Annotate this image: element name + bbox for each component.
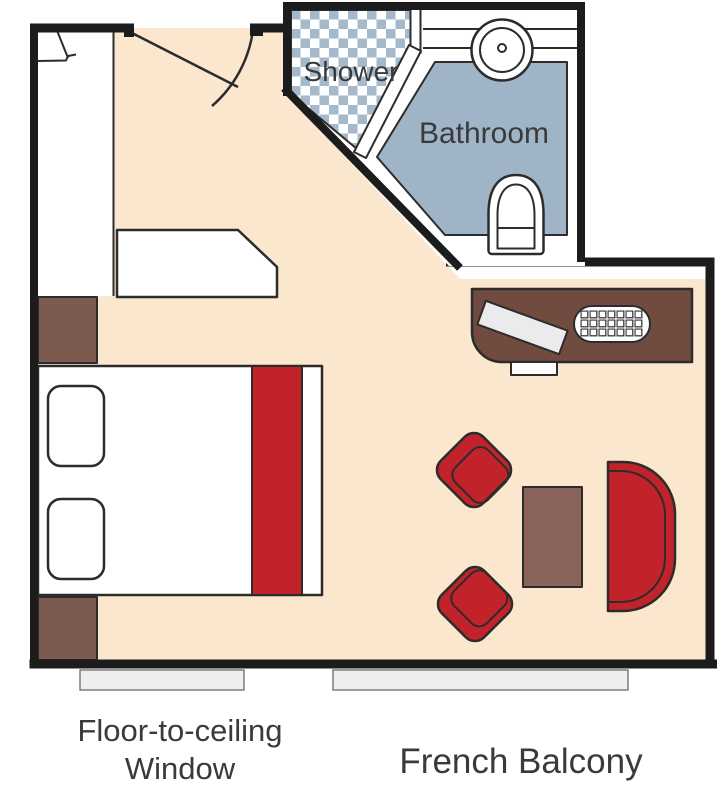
sink-drain xyxy=(498,44,506,52)
sink xyxy=(472,20,533,81)
door-jamb-left xyxy=(124,28,134,37)
desk-stool xyxy=(511,362,557,375)
pillow xyxy=(48,499,104,579)
desk xyxy=(472,289,692,375)
bed xyxy=(38,366,322,595)
window-sill xyxy=(80,670,244,690)
nightstand-bottom xyxy=(38,597,97,660)
closet-area xyxy=(38,28,114,296)
pillow xyxy=(48,386,104,466)
loveseat-halfround xyxy=(608,462,675,611)
balcony-caption: French Balcony xyxy=(399,742,643,781)
desk-keypad-grid xyxy=(581,311,644,338)
coffee-table xyxy=(523,487,582,587)
bed-runner xyxy=(252,366,302,595)
wardrobe-closet xyxy=(38,28,114,296)
nightstand-top xyxy=(38,297,97,363)
door-jamb-right xyxy=(250,28,263,36)
shower-label: Shower xyxy=(304,56,399,87)
balcony-sill xyxy=(333,670,628,690)
floorplan-canvas: Shower Bathroom Floor-to-ceiling Window … xyxy=(0,0,726,794)
bathroom-label: Bathroom xyxy=(419,117,549,150)
window-caption-line1: Floor-to-ceiling xyxy=(77,713,282,748)
stateroom-floorplan: Shower Bathroom Floor-to-ceiling Window … xyxy=(0,0,726,794)
window-caption-line2: Window xyxy=(125,751,236,786)
toilet xyxy=(489,175,544,254)
